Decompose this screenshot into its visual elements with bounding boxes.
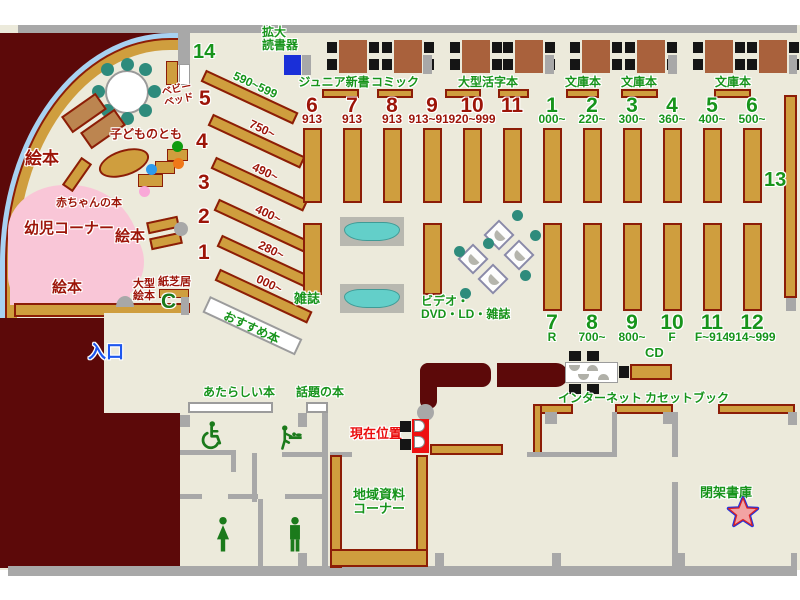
orange-dot — [173, 158, 184, 169]
chair — [587, 351, 599, 361]
counter — [497, 363, 568, 387]
chair — [569, 351, 581, 361]
bookshelf-column — [743, 128, 762, 203]
baby-bed — [166, 61, 178, 85]
chair — [400, 439, 411, 450]
green-dot — [172, 141, 183, 152]
wall — [612, 412, 617, 457]
av-carrels — [450, 208, 550, 308]
ehon-label-left: 絵本 — [25, 150, 59, 168]
bookshelf-column — [583, 128, 602, 203]
wall — [231, 450, 236, 472]
ehon-label-mid: 絵本 — [115, 229, 145, 245]
bookshelf-column — [503, 128, 522, 203]
baby-change-icon — [276, 424, 304, 452]
bookshelf-column — [543, 128, 562, 203]
pillar — [668, 55, 677, 74]
chair — [619, 366, 629, 378]
bookshelf-column — [703, 128, 722, 203]
wall-stub-right — [786, 297, 796, 311]
wall — [672, 412, 678, 457]
kodomo-label: 子どものとも — [110, 128, 182, 141]
wall — [282, 452, 327, 457]
bookshelf-column — [463, 128, 482, 203]
bookshelf-column — [663, 223, 682, 311]
wall-stub — [677, 553, 685, 568]
bunko-label: 文庫本 — [683, 76, 783, 89]
wall — [180, 494, 202, 499]
wall-stub — [545, 412, 557, 424]
col-range: 500~ — [724, 113, 780, 126]
wall-stub — [181, 297, 189, 315]
video-label: ビデオ・DVD・LD・雑誌 — [421, 295, 510, 321]
blue-dot — [146, 164, 157, 175]
current-position-label: 現在位置 — [350, 427, 402, 441]
bookshelf-column — [743, 223, 762, 311]
phone-icon: C — [161, 291, 176, 314]
wheelchair-icon — [196, 420, 226, 450]
bookshelf-column — [623, 223, 642, 311]
internet-table — [565, 362, 618, 383]
stack-num: 5 — [199, 88, 211, 111]
bunko-label: 文庫本 — [589, 76, 689, 89]
entrance-corridor — [104, 313, 190, 413]
large-print-label: 大型活字本 — [438, 76, 538, 89]
curved-bench — [340, 284, 404, 313]
ehon-label-bottom: 絵本 — [52, 280, 82, 296]
chair-dot — [139, 63, 152, 76]
bookshelf-column — [383, 128, 402, 203]
local-docs-label: 地域資料コーナー — [344, 488, 414, 516]
reading-table — [693, 40, 745, 73]
wall-stub — [435, 553, 444, 568]
toddler-corner-label: 幼児コーナー — [24, 221, 114, 237]
bookshelf-column — [663, 128, 682, 203]
comic-label: コミック — [345, 76, 445, 89]
col-range: 920~999 — [444, 113, 500, 126]
star-icon — [726, 495, 760, 529]
bookshelf-column — [543, 223, 562, 311]
bookshelf-column — [343, 128, 362, 203]
wall-stub — [552, 553, 561, 568]
chair-dot — [101, 63, 114, 76]
wall — [285, 494, 327, 499]
current-position-marker — [412, 419, 429, 453]
wall-top-left-pillar — [178, 25, 190, 65]
cassette-label: カセットブック — [645, 392, 729, 405]
bookshelf-column — [623, 128, 642, 203]
topic-books-shelf — [306, 402, 328, 413]
internet-label: インターネット — [558, 392, 642, 405]
shelf13-label: 13 — [764, 170, 786, 192]
wall-stub — [298, 553, 307, 568]
magnifier-reader — [284, 55, 301, 75]
stack-num: 4 — [196, 131, 208, 154]
stair-step — [155, 161, 175, 174]
wall-stub — [180, 415, 190, 427]
av-shelf — [423, 223, 442, 295]
magazine-shelf — [303, 223, 322, 295]
magazine-label: 雑誌 — [294, 292, 320, 306]
bookshelf-column — [703, 223, 722, 311]
new-books-label: あたらしい本 — [203, 386, 275, 399]
bookshelf-column — [303, 128, 322, 203]
wall — [228, 494, 258, 499]
cd-label: CD — [645, 346, 664, 360]
col-range: 914~999 — [724, 331, 780, 344]
baby-books-label: 赤ちゃんの本 — [56, 198, 122, 210]
reading-table — [327, 40, 379, 73]
offmap-mid-left — [0, 318, 104, 413]
local-docs-shelf — [330, 549, 428, 567]
wall — [672, 482, 678, 568]
wall-stub — [788, 412, 797, 425]
offmap-lower-left — [0, 412, 180, 568]
new-books-shelf — [188, 402, 273, 413]
chair-dot — [121, 58, 134, 71]
wall — [322, 413, 328, 568]
shelf — [718, 404, 795, 414]
shelf — [533, 404, 542, 455]
reading-table — [570, 40, 622, 73]
pillar — [789, 55, 797, 74]
cd-shelf — [630, 364, 672, 380]
woman-icon — [212, 516, 234, 554]
bookshelf-column — [423, 128, 442, 203]
bookshelf-13 — [784, 95, 797, 298]
shelf — [430, 444, 503, 455]
magnifier-reader-label: 拡大読書器 — [262, 26, 298, 52]
pillar — [302, 55, 311, 75]
pillar — [423, 55, 432, 74]
entrance-label: 入口 — [88, 343, 124, 362]
wall-top — [18, 25, 797, 33]
kamishibai-label: 紙芝居 — [158, 277, 191, 289]
stair-step — [138, 174, 163, 187]
wall — [528, 452, 547, 457]
counter-arm — [420, 363, 437, 409]
curved-bench — [340, 217, 404, 246]
wall — [258, 499, 263, 568]
large-ehon-label: 大型絵本 — [130, 279, 158, 303]
wall-stub — [791, 553, 797, 568]
reading-table — [450, 40, 502, 73]
pillar — [545, 55, 554, 74]
stack-num: 3 — [198, 172, 210, 195]
wall — [180, 450, 236, 455]
chair — [400, 421, 411, 432]
bookshelf-column — [583, 223, 602, 311]
chair-dot — [139, 104, 152, 117]
topic-books-label: 話題の本 — [296, 386, 344, 399]
stack-num: 2 — [198, 206, 210, 229]
man-icon — [284, 516, 306, 554]
stack-num: 1 — [198, 242, 210, 265]
pink-dot — [139, 186, 150, 197]
chair-dot — [148, 85, 161, 98]
pillar — [174, 222, 188, 236]
library-floor-map: ベビーベッド C 絵本 絵本 絵本 幼児コーナー 赤ちゃんの本 子どものとも 大… — [0, 0, 800, 600]
